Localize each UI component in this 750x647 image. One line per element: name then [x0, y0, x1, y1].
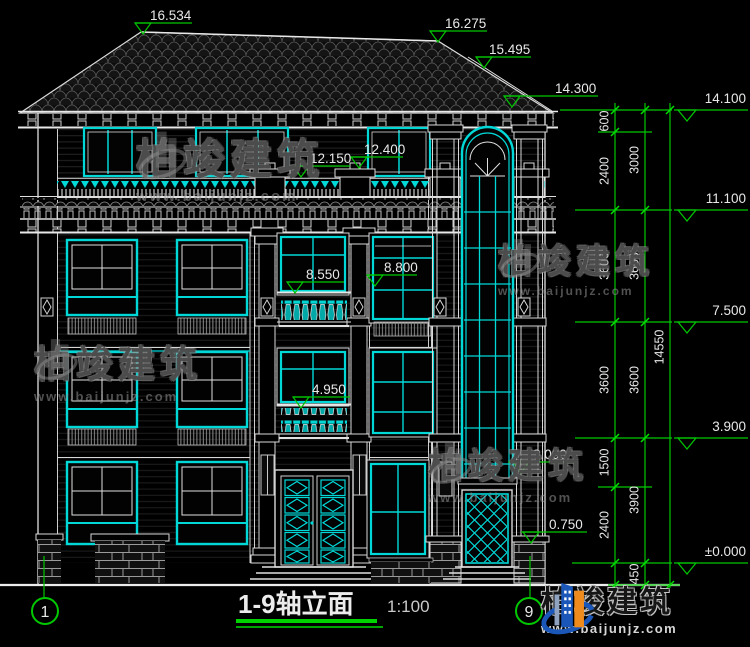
elev-tower-eave: 14.300 [555, 81, 596, 96]
level-7500: 7.500 [712, 303, 746, 318]
window-3f-right [369, 233, 437, 323]
window-3f-middle [277, 233, 349, 295]
elev-ridge-main: 16.534 [150, 8, 192, 23]
brand-logo-icon [541, 577, 597, 639]
level-14100: 14.100 [705, 91, 746, 106]
window-3f-left2 [177, 240, 247, 315]
level-3900: 3.900 [712, 419, 746, 434]
drawing-title: 1-9轴立面 [238, 589, 354, 619]
window-2f-right [369, 348, 437, 437]
dim-600: 600 [598, 111, 612, 132]
dim-3600b: 3600 [598, 366, 612, 394]
window-3f-left1 [67, 240, 137, 315]
elev-sill: 0.750 [549, 517, 583, 532]
window-1f-right [367, 460, 429, 558]
dim-3600d: 3600 [628, 366, 642, 394]
level-11100: 11.100 [706, 191, 746, 206]
elev-f2-rail-mid: 4.950 [312, 382, 346, 397]
entrance-door [275, 470, 353, 567]
dim-3600c: 3600 [628, 252, 642, 280]
dim-2400b: 2400 [598, 511, 612, 539]
dim-3900: 3900 [628, 486, 642, 514]
dim-2400a: 2400 [598, 157, 612, 185]
level-0000: ±0.000 [705, 544, 746, 559]
title-underline-thick [236, 619, 377, 623]
dim-total-14550: 14550 [653, 330, 667, 365]
tower-arch-window [458, 127, 517, 484]
axis-label-1: 1 [41, 604, 50, 621]
brand-logo: 柏竣建筑 www.baijunjz.com [541, 577, 677, 636]
dim-3000: 3000 [628, 146, 642, 174]
elev-porch: 3.000 [533, 447, 567, 462]
elev-roof-hip: 15.495 [489, 42, 530, 57]
building-elevation [0, 32, 680, 585]
dim-1500: 1500 [598, 449, 612, 477]
elev-f3-rail-mid: 8.550 [306, 267, 340, 282]
window-2f-left1 [67, 352, 137, 427]
elev-f3-rail-right: 8.800 [384, 260, 418, 275]
elev-ridge-right: 16.275 [445, 16, 486, 31]
entrance-steps [250, 567, 378, 579]
window-1f-left1 [67, 462, 137, 544]
elev-attic-rail-right: 12.400 [364, 142, 405, 157]
axis-label-9: 9 [525, 604, 534, 621]
tower-door [462, 490, 512, 567]
attic-window-1 [84, 128, 156, 176]
hip-roof [20, 32, 553, 113]
cad-elevation-drawing: 16.534 16.275 15.495 14.300 12.150 12.40… [0, 0, 750, 647]
title-block: 1-9轴立面 1:100 [236, 589, 430, 628]
eave-cornice [18, 112, 558, 128]
window-1f-left2 [177, 462, 247, 544]
window-2f-left2 [177, 352, 247, 427]
title-underline-thin [236, 626, 383, 628]
dim-3600a: 3600 [598, 252, 612, 280]
drawing-canvas: 16.534 16.275 15.495 14.300 12.150 12.40… [0, 0, 750, 647]
drawing-scale: 1:100 [387, 597, 430, 616]
elev-attic-rail-mid: 12.150 [310, 151, 351, 166]
